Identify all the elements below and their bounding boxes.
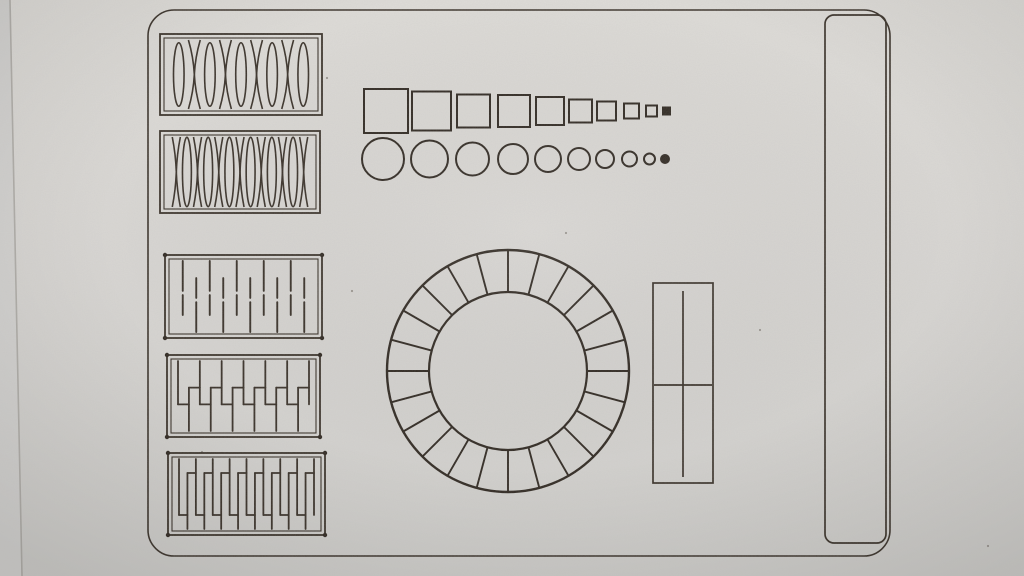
photo-laser-cut-test-sheet: Photograph of a laser-cut and engraved c… — [0, 0, 1024, 576]
photo-grain-layer — [0, 0, 1024, 576]
test-sheet-scene: Photograph of a laser-cut and engraved c… — [0, 0, 1024, 576]
